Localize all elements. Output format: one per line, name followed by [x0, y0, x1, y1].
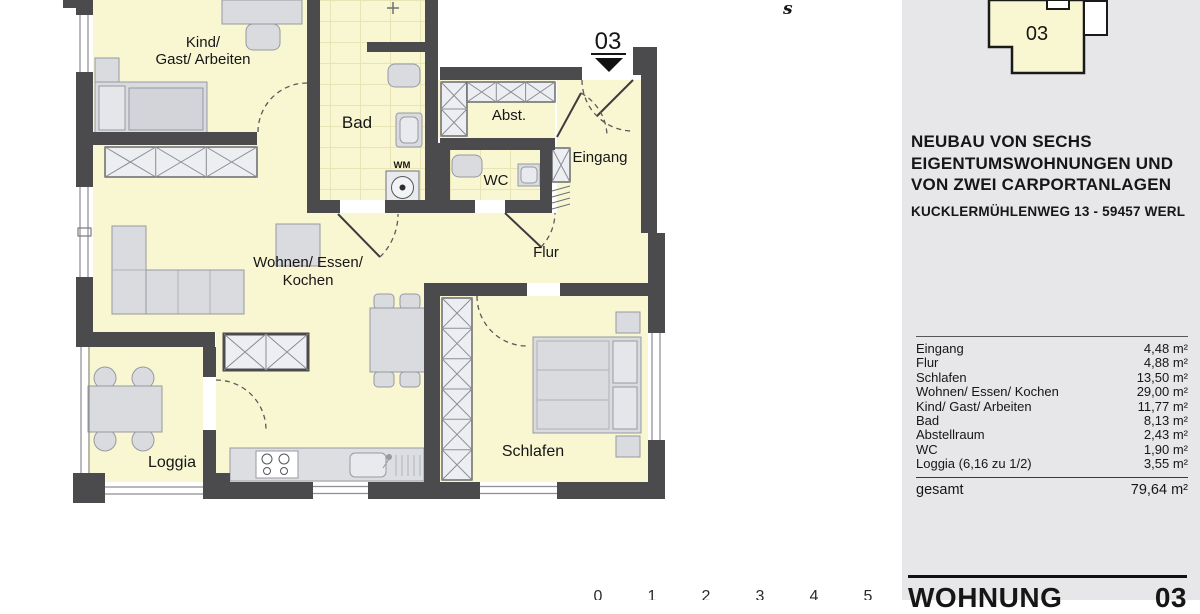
area-row: Flur 4,88 m² [916, 356, 1188, 370]
site-plan-neighbor-shape [1084, 1, 1107, 35]
area-row: WC 1,90 m² [916, 443, 1188, 457]
window [80, 15, 88, 72]
project-block: NEUBAU VON SECHS EIGENTUMSWOHNUNGEN UND … [911, 131, 1195, 219]
nightstand [616, 436, 640, 457]
window [652, 333, 660, 440]
sink [350, 453, 386, 477]
footer-label: WOHNUNG [908, 582, 1062, 614]
label-wm: WM [394, 160, 411, 171]
area-label: Kind/ Gast/ Arbeiten [916, 400, 1032, 414]
label-eingang: Eingang [572, 149, 627, 166]
area-row: Eingang 4,48 m² [916, 342, 1188, 356]
area-row: Bad 8,13 m² [916, 414, 1188, 428]
scale-bar: 0 1 2 3 4 5 [594, 588, 873, 600]
cabinet [95, 58, 119, 82]
area-row: Abstellraum 2,43 m² [916, 428, 1188, 442]
area-value: 2,43 m² [1144, 428, 1188, 442]
scale-tick: 5 [864, 588, 873, 600]
scale-tick: 1 [648, 588, 657, 600]
area-row: Loggia (6,16 zu 1/2) 3,55 m² [916, 457, 1188, 471]
project-title-line2: EIGENTUMSWOHNUNGEN UND [911, 153, 1195, 175]
toilet [388, 64, 420, 87]
window [78, 187, 91, 277]
double-bed [533, 337, 641, 433]
label-bad: Bad [342, 113, 372, 132]
single-bed [95, 82, 207, 134]
area-label: Flur [916, 356, 938, 370]
area-total-row: gesamt 79,64 m² [916, 477, 1188, 499]
scale-tick: 2 [702, 588, 711, 600]
entrance-arrow-icon [595, 58, 623, 72]
area-value: 4,48 m² [1144, 342, 1188, 356]
stove [256, 451, 298, 478]
label-kind-line2: Gast/ Arbeiten [155, 51, 250, 68]
label-loggia: Loggia [148, 454, 196, 471]
kitchen-closet [224, 334, 308, 370]
nightstand [616, 312, 640, 333]
footer-row: WOHNUNG 03 [908, 582, 1187, 614]
site-plan-notch [1047, 0, 1069, 9]
scale-tick: 0 [594, 588, 603, 600]
area-row: Wohnen/ Essen/ Kochen 29,00 m² [916, 385, 1188, 399]
label-wohnen-line2: Kochen [283, 272, 334, 289]
label-abst: Abst. [492, 107, 526, 124]
wc-toilet [452, 155, 482, 177]
area-label: Schlafen [916, 371, 967, 385]
scale-tick: 3 [756, 588, 765, 600]
site-plan-unit-number: 03 [1026, 23, 1048, 45]
site-plan: 03 [985, 0, 1120, 80]
entrance-marker: 03 [591, 28, 626, 72]
entrance-number: 03 [595, 28, 622, 55]
label-wc: WC [484, 172, 509, 189]
window [313, 487, 368, 494]
label-kind-line1: Kind/ [186, 34, 221, 51]
area-value: 29,00 m² [1137, 385, 1188, 399]
area-label: Abstellraum [916, 428, 985, 442]
project-title-line1: NEUBAU VON SECHS [911, 131, 1195, 153]
area-table: Eingang 4,48 m² Flur 4,88 m² Schlafen 13… [916, 336, 1188, 499]
info-panel: 03 NEUBAU VON SECHS EIGENTUMSWOHNUNGEN U… [902, 0, 1200, 600]
kitchen-counter [230, 448, 424, 481]
area-value: 3,55 m² [1144, 457, 1188, 471]
area-label: Bad [916, 414, 939, 428]
area-value: 4,88 m² [1144, 356, 1188, 370]
scale-tick: 4 [810, 588, 819, 600]
area-value: 8,13 m² [1144, 414, 1188, 428]
footer-unit-number: 03 [1155, 582, 1187, 614]
floor-plan: Kind/ Gast/ Arbeiten Bad Abst. Eingang W… [0, 0, 902, 600]
label-wohnen-line1: Wohnen/ Essen/ [253, 254, 364, 271]
wardrobe-schlafen [442, 298, 472, 480]
project-title-line3: VON ZWEI CARPORTANLAGEN [911, 174, 1195, 196]
window [480, 487, 557, 494]
loggia-table [88, 386, 162, 432]
footer-rule [908, 575, 1187, 578]
area-label: Wohnen/ Essen/ Kochen [916, 385, 1059, 399]
area-total-label: gesamt [916, 482, 964, 499]
area-total-value: 79,64 m² [1131, 482, 1188, 499]
compass-south-icon: s [782, 0, 793, 19]
project-address: KUCKLERMÜHLENWEG 13 - 59457 WERL [911, 204, 1195, 219]
label-flur: Flur [533, 244, 559, 261]
desk-chair [246, 24, 280, 50]
wardrobe-kind [105, 147, 257, 177]
area-label: Eingang [916, 342, 964, 356]
label-schlafen: Schlafen [502, 443, 564, 460]
area-label: Loggia (6,16 zu 1/2) [916, 457, 1032, 471]
area-value: 1,90 m² [1144, 443, 1188, 457]
area-value: 13,50 m² [1137, 371, 1188, 385]
area-label: WC [916, 443, 938, 457]
area-row: Schlafen 13,50 m² [916, 371, 1188, 385]
area-row: Kind/ Gast/ Arbeiten 11,77 m² [916, 400, 1188, 414]
area-value: 11,77 m² [1138, 400, 1188, 414]
